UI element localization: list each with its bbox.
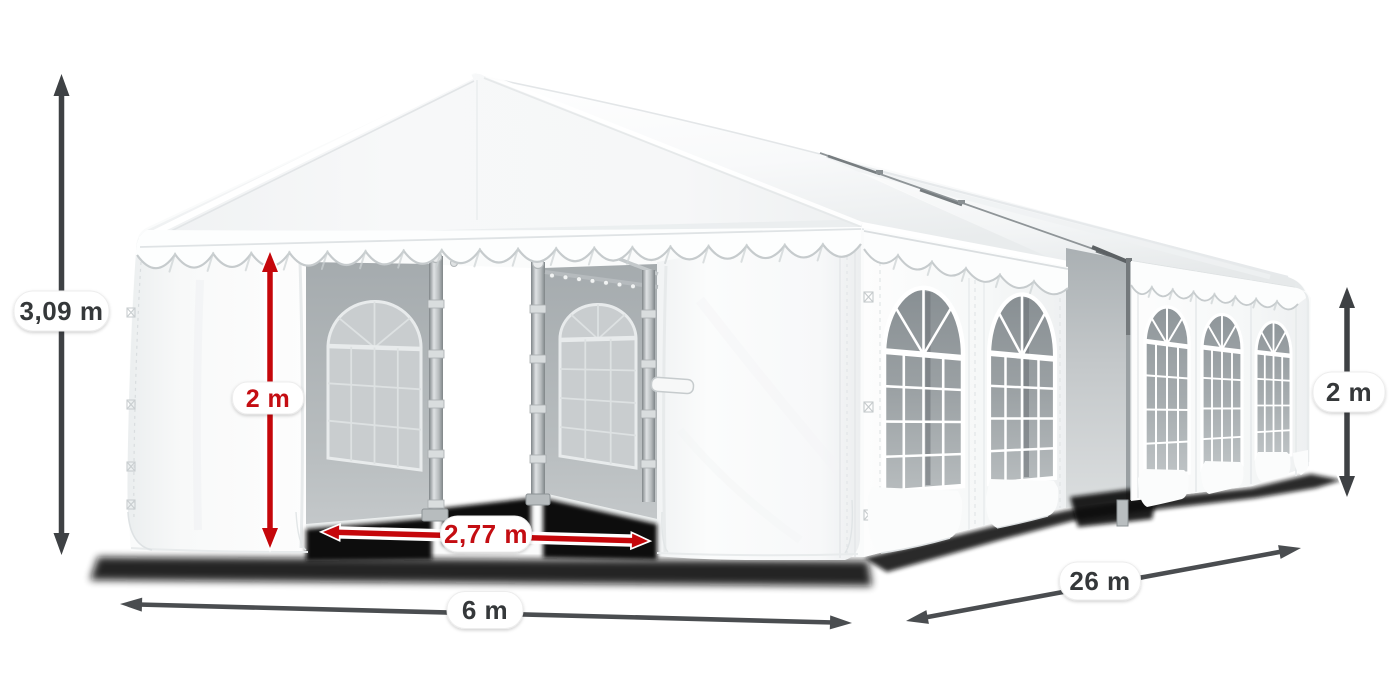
svg-text:2 m: 2 m [1326, 377, 1372, 407]
svg-text:26 m: 26 m [1069, 566, 1130, 596]
svg-text:2 m: 2 m [246, 385, 291, 413]
svg-text:3,09 m: 3,09 m [20, 296, 104, 326]
svg-text:2,77 m: 2,77 m [444, 519, 528, 549]
svg-text:6 m: 6 m [462, 595, 508, 625]
